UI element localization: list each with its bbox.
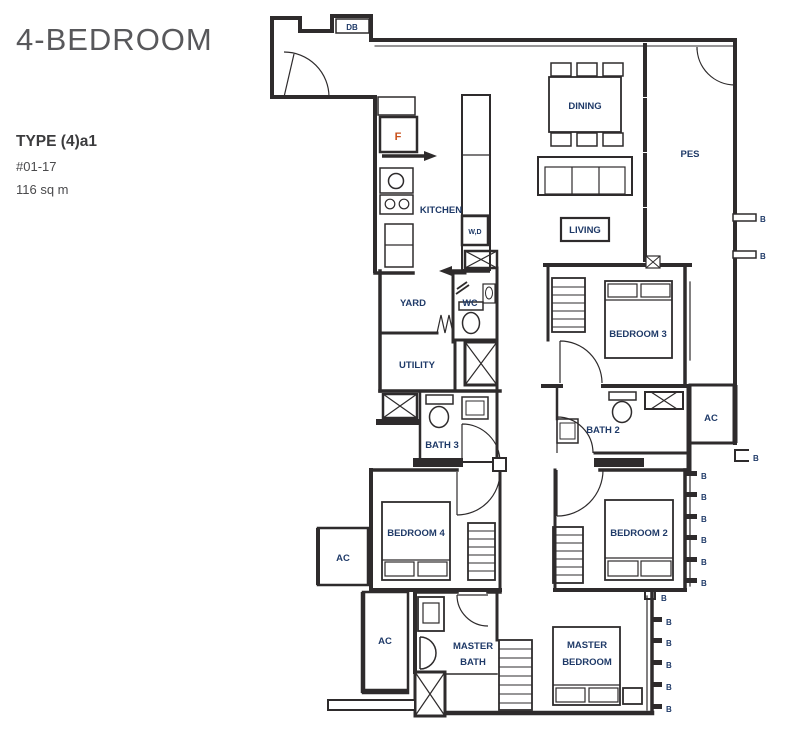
room-labels: DB F KITCHEN W,D DINING PES LIVING YARD … <box>336 23 718 668</box>
shaft-masterbath <box>415 672 445 716</box>
wardrobe-master <box>499 640 532 710</box>
b-marker: B <box>701 579 707 588</box>
bed-bedroom4 <box>382 502 450 580</box>
balcony-marker-labels: B B B B B B B B B B B B B B B <box>661 215 766 714</box>
bath3-toilet <box>426 395 453 428</box>
corridor-post <box>493 458 506 471</box>
wall-foyer-bottom-kitchen-left <box>272 97 375 271</box>
bath3-door-arc <box>462 424 500 462</box>
room-label-bath3: BATH 3 <box>425 440 459 451</box>
wall-bar-bath3 <box>413 458 463 467</box>
bedroom4-door-arc <box>457 472 500 515</box>
b-marker: B <box>666 661 672 670</box>
kitchen-sink <box>380 168 413 193</box>
wc-shower-icon <box>456 282 469 294</box>
room-label-bedroom4: BEDROOM 4 <box>387 528 445 539</box>
floor-plan-page: 4-BEDROOM TYPE (4)a1 #01-17 116 sq m <box>0 0 802 737</box>
wc-basin <box>483 284 495 303</box>
wardrobe-bedroom3 <box>552 278 585 332</box>
ac-label-bedroom4: AC <box>336 553 350 564</box>
fridge-label: F <box>395 131 402 143</box>
floor-plan: DB F KITCHEN W,D DINING PES LIVING YARD … <box>0 0 802 737</box>
room-label-masterbedroom-1: MASTER <box>567 640 607 651</box>
room-label-pes: PES <box>680 149 699 160</box>
bath2-toilet <box>609 392 636 423</box>
masterbath-basin <box>420 637 436 669</box>
bath2-basin <box>557 419 578 443</box>
room-label-utility: UTILITY <box>399 360 436 371</box>
room-label-kitchen: KITCHEN <box>420 205 462 216</box>
b-marker: B <box>701 493 707 502</box>
entry-door-arc <box>284 52 329 97</box>
room-label-masterbath-2: BATH <box>460 657 486 668</box>
washer-dryer-label: W,D <box>468 229 481 236</box>
b-marker: B <box>701 536 707 545</box>
nightstand-master <box>623 688 642 704</box>
b-marker: B <box>666 683 672 692</box>
bath2-vent-box <box>645 392 683 409</box>
room-label-masterbath-1: MASTER <box>453 641 493 652</box>
bath3-basin <box>462 397 488 419</box>
b-marker: B <box>701 515 707 524</box>
db-label: DB <box>346 23 358 32</box>
room-label-bedroom2: BEDROOM 2 <box>610 528 668 539</box>
pes-door-arc <box>697 47 735 85</box>
b-marker: B <box>666 705 672 714</box>
wardrobe-bedroom2 <box>553 527 583 583</box>
bottom-ledge <box>328 700 415 710</box>
masterbath-toilet <box>418 597 444 631</box>
wall-master-right-step <box>652 590 685 713</box>
bed-bedroom2 <box>605 500 673 580</box>
wall-outer-top-right <box>272 16 735 443</box>
room-label-dining: DINING <box>568 101 601 112</box>
bedroom3-door-arc <box>560 341 602 383</box>
ac-label-right: AC <box>704 413 718 424</box>
b-marker: B <box>760 252 766 261</box>
walls <box>272 16 735 713</box>
b-marker: B <box>701 558 707 567</box>
b-marker: B <box>760 215 766 224</box>
b-marker: B <box>661 594 667 603</box>
kitchen-top-cabinet <box>378 97 415 115</box>
balcony-ticks <box>645 214 756 709</box>
shaft-utility <box>465 342 497 385</box>
b-marker: B <box>701 472 707 481</box>
wall-bar-shaft-ledge <box>376 419 420 425</box>
kitchen-hob <box>380 195 413 214</box>
room-label-yard: YARD <box>400 298 426 309</box>
wall-bar-bath2 <box>594 458 644 467</box>
room-label-bath2: BATH 2 <box>586 425 620 436</box>
shaft-bedroom3-vent <box>646 256 660 268</box>
b-marker: B <box>666 618 672 627</box>
b-marker: B <box>666 639 672 648</box>
shaft-bath3 <box>383 394 417 418</box>
sofa <box>538 157 632 195</box>
bedroom2-door-arc <box>557 470 603 516</box>
room-label-living: LIVING <box>569 225 601 236</box>
wardrobe-bedroom4 <box>468 523 495 580</box>
b-marker: B <box>753 454 759 463</box>
yard-utility-bifold-door <box>437 315 453 333</box>
masterbath-door-arc <box>457 595 488 626</box>
room-label-masterbedroom-2: BEDROOM <box>562 657 612 668</box>
room-label-bedroom3: BEDROOM 3 <box>609 329 667 340</box>
bed-bedroom3 <box>605 281 672 358</box>
kitchen-lower-cabinet <box>385 224 413 267</box>
shaft-kitchen <box>465 251 497 268</box>
room-label-wc: WC <box>463 298 478 308</box>
ac-label-bottom: AC <box>378 636 392 647</box>
